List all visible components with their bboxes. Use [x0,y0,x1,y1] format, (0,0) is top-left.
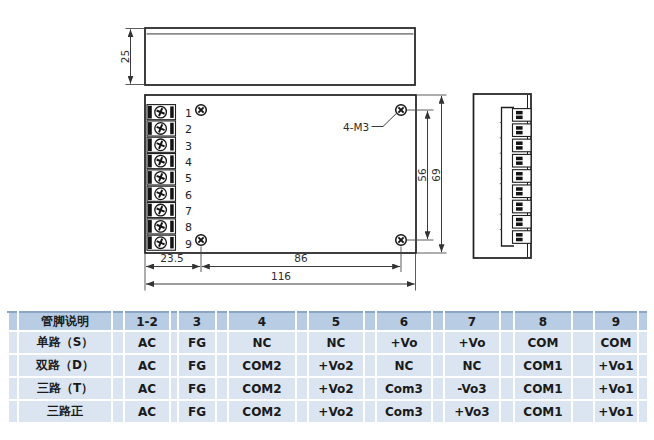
table-spacer-cell [216,354,228,377]
pin-cell: COM2 [228,377,296,400]
pin-cell: FG [178,354,216,377]
pin-cell: +Vo3 [444,400,500,423]
pin-cell: FG [178,400,216,423]
row-label: 三路正 [18,400,112,423]
table-spacer-cell [638,354,648,377]
pin-cell: COM1 [514,400,572,423]
col-header: 1-2 [124,312,170,331]
table-spacer-cell [296,331,308,354]
terminal-number: 7 [185,205,192,218]
table-spacer-cell [364,331,376,354]
table-spacer-cell [8,331,18,354]
col-header-pin-description: 管脚说明 [18,312,112,331]
table-spacer-cell [572,377,594,400]
pin-cell: +Vo [376,331,432,354]
mount-hole-icon [396,235,407,246]
pin-cell: COM2 [228,354,296,377]
table-spacer-cell [638,331,648,354]
table-spacer-cell [8,354,18,377]
pin-cell: Com3 [376,400,432,423]
pin-cell: AC [124,354,170,377]
table-spacer-cell [572,400,594,423]
table-spacer-cell [112,331,124,354]
terminal-number: 2 [185,123,192,136]
pin-description-table: 管脚说明 1-2 3 4 5 6 7 8 9 单路（S） AC FG [7,311,649,424]
table-spacer-cell [432,312,444,331]
table-spacer-cell [112,312,124,331]
col-header: 4 [228,312,296,331]
table-spacer-cell [216,377,228,400]
pin-cell: COM [514,331,572,354]
table-spacer-cell [296,400,308,423]
terminal-block-front: 123456789 [147,105,192,251]
table-spacer-cell [432,400,444,423]
table-spacer-cell [8,312,18,331]
table-spacer-cell [432,377,444,400]
col-header: 8 [514,312,572,331]
table-spacer-cell [432,354,444,377]
mechanical-drawing: 25 123456789 4-M3 56 69 [0,0,654,308]
pin-cell: +Vo2 [308,354,364,377]
terminal-number: 1 [185,107,192,120]
table-spacer-cell [8,400,18,423]
table-spacer-cell [170,354,178,377]
col-header: 7 [444,312,500,331]
table-spacer-cell [296,312,308,331]
mount-hole-label: 4-M3 [343,121,369,133]
col-header: 3 [178,312,216,331]
mount-hole-icon [196,235,207,246]
table-spacer-cell [8,377,18,400]
row-label: 三路（T） [18,377,112,400]
table-spacer-cell [572,354,594,377]
dim-overall-height-label: 69 [430,168,442,181]
table-spacer-cell [500,400,514,423]
pin-cell: Com3 [376,377,432,400]
dim-hole-pitch-v-label: 56 [416,168,428,182]
terminal-number: 3 [185,140,192,153]
col-header: 9 [594,312,638,331]
table-row: 双路（D） AC FG COM2 +Vo2 NC NC COM1 +Vo1 [8,354,648,377]
table-row: 三路（T） AC FG COM2 +Vo2 Com3 -Vo3 COM1 +Vo… [8,377,648,400]
pin-cell: FG [178,331,216,354]
table-spacer-cell [364,377,376,400]
pin-cell: COM1 [514,377,572,400]
dim-top-height: 25 [119,29,145,85]
table-spacer-cell [500,331,514,354]
pin-cell: +Vo1 [594,400,638,423]
pin-cell: AC [124,377,170,400]
table-spacer-cell [112,377,124,400]
dim-overall-width-label: 116 [271,270,291,282]
pin-cell: +Vo2 [308,377,364,400]
table-spacer-cell [638,312,648,331]
pin-cell: AC [124,331,170,354]
top-view [145,28,415,85]
table-row: 三路正 AC FG COM2 +Vo2 Com3 +Vo3 COM1 +Vo1 [8,400,648,423]
pin-cell: +Vo [444,331,500,354]
terminal-number: 9 [185,238,192,251]
pin-cell: COM2 [228,400,296,423]
table-spacer-cell [638,400,648,423]
table-spacer-cell [500,377,514,400]
terminal-number: 5 [185,172,192,185]
mount-hole-icon [196,105,207,116]
table-spacer-cell [572,312,594,331]
table-spacer-cell [170,400,178,423]
dim-hole-pitch-h-label: 86 [294,252,308,264]
pin-cell: NC [228,331,296,354]
pin-cell: NC [444,354,500,377]
table-spacer-cell [432,331,444,354]
datasheet-page: 25 123456789 4-M3 56 69 [0,0,654,440]
table-spacer-cell [112,354,124,377]
table-spacer-cell [500,312,514,331]
table-spacer-cell [296,354,308,377]
table-spacer-cell [572,331,594,354]
table-spacer-cell [170,331,178,354]
pin-cell: NC [376,354,432,377]
col-header: 6 [376,312,432,331]
table-row: 单路（S） AC FG NC NC +Vo +Vo COM COM [8,331,648,354]
pin-cell: AC [124,400,170,423]
dim-top-height-label: 25 [119,50,131,63]
table-spacer-cell [170,377,178,400]
table-spacer-cell [216,400,228,423]
pin-cell: -Vo3 [444,377,500,400]
pin-cell: +Vo1 [594,354,638,377]
mount-hole-icon [396,105,407,116]
pin-cell: COM [594,331,638,354]
table-spacer-cell [216,312,228,331]
row-label: 单路（S） [18,331,112,354]
terminal-number: 8 [185,221,192,234]
pin-cell: FG [178,377,216,400]
terminal-number: 6 [185,189,192,202]
table-spacer-cell [500,354,514,377]
table-spacer-cell [112,400,124,423]
table-spacer-cell [296,377,308,400]
table-spacer-cell [364,312,376,331]
pin-cell: NC [308,331,364,354]
pin-cell: +Vo2 [308,400,364,423]
table-spacer-cell [216,331,228,354]
table-spacer-cell [170,312,178,331]
col-header: 5 [308,312,364,331]
pin-cell: COM1 [514,354,572,377]
row-label: 双路（D） [18,354,112,377]
dim-edge-to-hole-label: 23.5 [160,252,183,264]
table-spacer-cell [638,377,648,400]
table-spacer-cell [364,354,376,377]
table-header-row: 管脚说明 1-2 3 4 5 6 7 8 9 [8,312,648,331]
table-spacer-cell [364,400,376,423]
pin-cell: +Vo1 [594,377,638,400]
terminal-number: 4 [185,156,192,169]
